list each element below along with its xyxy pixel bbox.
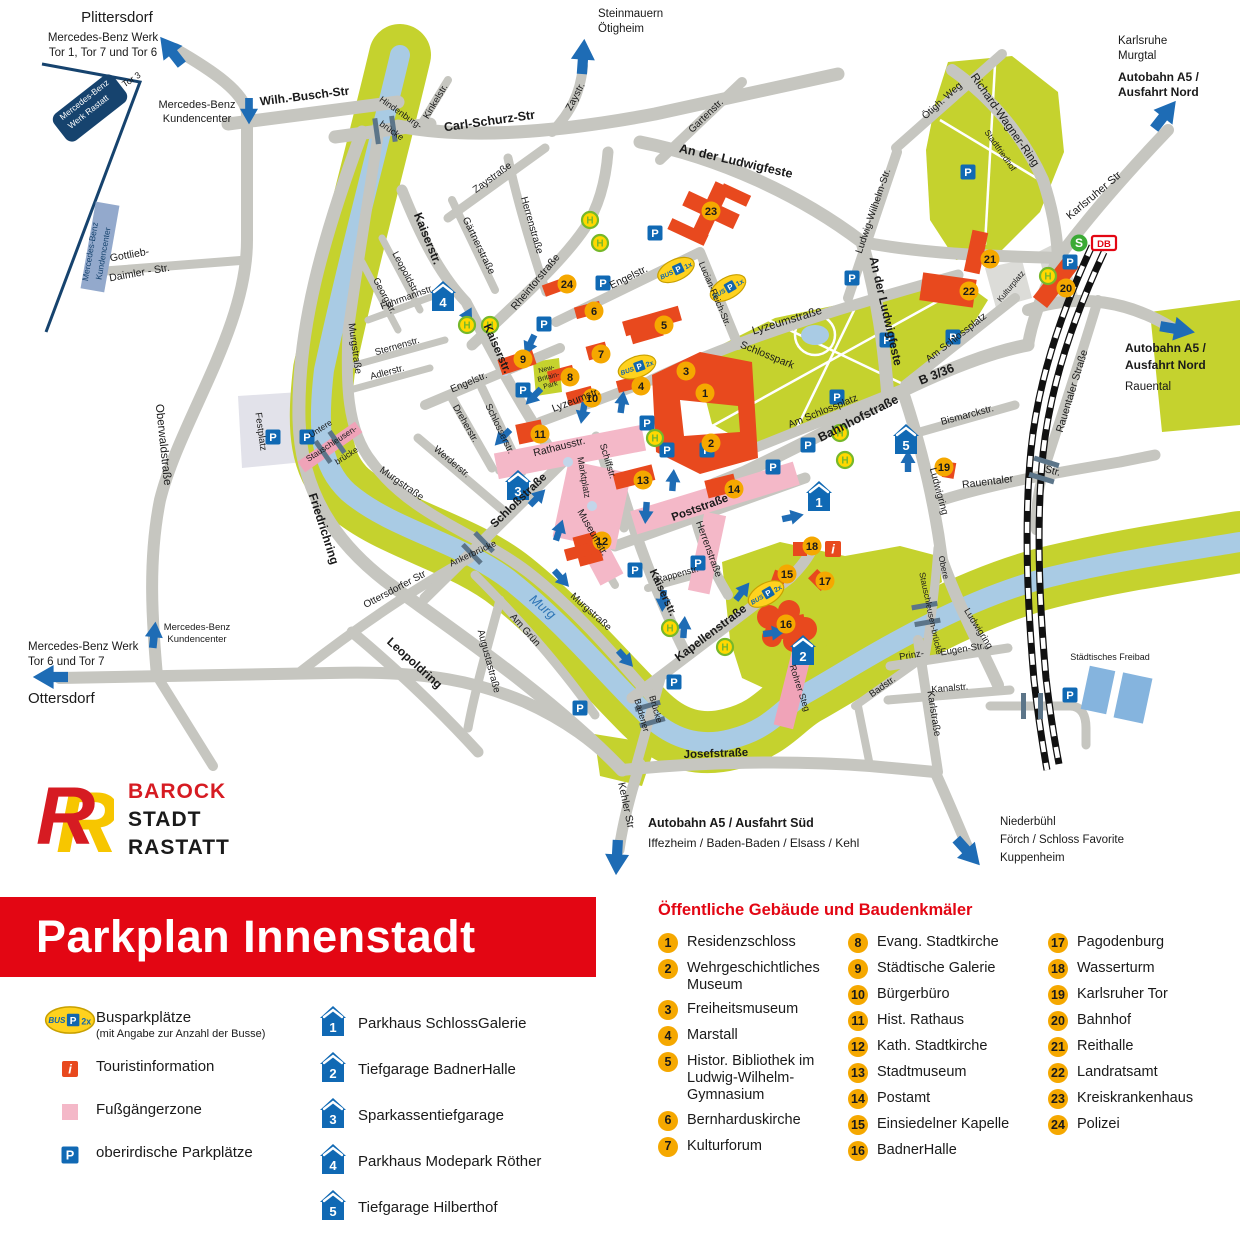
direction-arrow-icon	[781, 507, 806, 526]
building-marker-13: 13	[634, 471, 653, 490]
bus-stop-icon: H	[647, 430, 663, 446]
street-label: Schlosserstr.	[482, 402, 516, 456]
road	[858, 706, 870, 766]
direction-arrow-icon	[604, 839, 630, 875]
parking-icon: P	[961, 165, 976, 180]
public-building	[719, 183, 751, 207]
building-list-item-16: 16BadnerHalle	[848, 1142, 1040, 1161]
parking-icon: P	[801, 438, 816, 453]
building-marker-20: 20	[1057, 279, 1076, 298]
street-label: Rauental	[1125, 381, 1171, 393]
legend-item-pink-square: Fußgängerzone	[44, 1098, 316, 1126]
building-list-item-22: 22Landratsamt	[1048, 1064, 1238, 1083]
logo-line1: BAROCK	[128, 778, 230, 806]
street-label: Kuppenheim	[1000, 852, 1065, 864]
building-list-item-6: 6Bernharduskirche	[658, 1112, 840, 1131]
bus-stop-icon: H	[717, 639, 733, 655]
svg-text:H: H	[586, 216, 593, 227]
parking-icon: P	[1063, 255, 1078, 270]
street-label: Autobahn A5 / Ausfahrt Süd	[648, 816, 814, 830]
sbahn-icon: S	[1071, 235, 1088, 252]
svg-text:H: H	[463, 321, 470, 332]
street-label: Karlsruhe	[1118, 35, 1167, 47]
parkhaus-icon: 1	[318, 1004, 348, 1038]
building-marker-22: 22	[960, 282, 979, 301]
logo-line2: STADT	[128, 806, 230, 834]
building-number-badge: 23	[1048, 1089, 1068, 1109]
building-number-badge: 4	[658, 1026, 678, 1046]
legend-item-info: iTouristinformation	[44, 1055, 316, 1083]
buildings-list-col3: 17Pagodenburg18Wasserturm19Karlsruher To…	[1048, 934, 1238, 1142]
building-list-item-21: 21Reithalle	[1048, 1038, 1238, 1057]
building-list-item-3: 3Freiheitsmuseum	[658, 1001, 840, 1020]
building-name: Einsiedelner Kapelle	[877, 1116, 1009, 1133]
building-name: Freiheitsmuseum	[687, 1001, 798, 1018]
svg-text:1: 1	[329, 1020, 336, 1035]
svg-text:H: H	[596, 239, 603, 250]
symbol-legend: BUSP2xBusparkplätze(mit Angabe zur Anzah…	[44, 1006, 316, 1184]
svg-text:P: P	[1066, 257, 1074, 269]
buildings-list-col1: 1Residenzschloss2Wehrgeschichtliches Mus…	[658, 934, 840, 1164]
svg-text:4: 4	[638, 381, 645, 393]
building-number-badge: 3	[658, 1000, 678, 1020]
svg-text:H: H	[1044, 272, 1051, 283]
bus-stop-icon: H	[582, 212, 598, 228]
legend-label: Fußgängerzone	[96, 1098, 202, 1118]
svg-text:S: S	[1075, 236, 1083, 250]
svg-text:1: 1	[815, 495, 822, 510]
building-number-badge: 11	[848, 1011, 868, 1031]
fountain-dot	[587, 501, 597, 511]
building-name: Evang. Stadtkirche	[877, 934, 999, 951]
parking-icon: P	[766, 460, 781, 475]
legend-label: Busparkplätze	[96, 1006, 265, 1026]
svg-text:14: 14	[728, 484, 741, 496]
building-marker-2: 2	[702, 434, 721, 453]
svg-text:H: H	[666, 624, 673, 635]
building-marker-24: 24	[558, 275, 577, 294]
tourist-info-icon: i	[62, 1061, 78, 1077]
page-title: Parkplan Innenstadt	[0, 911, 476, 963]
parkhaus-legend: 1Parkhaus SchlossGalerie2Tiefgarage Badn…	[318, 1004, 568, 1234]
park-pond	[801, 325, 829, 345]
svg-text:5: 5	[329, 1204, 336, 1219]
building-number-badge: 17	[1048, 933, 1068, 953]
svg-text:2: 2	[329, 1066, 336, 1081]
svg-text:i: i	[831, 542, 835, 557]
info-icon: i	[44, 1055, 96, 1083]
svg-text:2: 2	[799, 649, 806, 664]
svg-text:DB: DB	[1097, 239, 1111, 250]
legend-item-p-square: Poberirdische Parkplätze	[44, 1141, 316, 1169]
parkhaus-label: Sparkassentiefgarage	[358, 1107, 504, 1124]
street-label: Autobahn A5 /	[1125, 341, 1207, 355]
building-number-badge: 21	[1048, 1037, 1068, 1057]
building-number-badge: 9	[848, 959, 868, 979]
parkhaus-icon: 5	[318, 1188, 348, 1222]
bus-parking-icon: BUSP2x	[46, 1007, 95, 1033]
street-label: Mercedes-Benz Werk	[48, 32, 159, 44]
building-name: Bahnhof	[1077, 1012, 1131, 1029]
building-name: BadnerHalle	[877, 1142, 957, 1159]
svg-text:P: P	[519, 385, 527, 397]
parkhaus-icon: 3	[318, 1096, 348, 1130]
street-label: Josefstraße	[683, 747, 748, 761]
building-number-badge: 20	[1048, 1011, 1068, 1031]
direction-arrow-icon	[144, 621, 165, 649]
barock-stadt-rastatt-logo: R R BAROCK STADT RASTATT	[30, 770, 230, 870]
svg-text:6: 6	[591, 306, 597, 318]
svg-text:7: 7	[598, 349, 604, 361]
svg-text:P: P	[269, 432, 277, 444]
building-list-item-15: 15Einsiedelner Kapelle	[848, 1116, 1040, 1135]
svg-text:2x: 2x	[81, 1016, 91, 1026]
building-marker-7: 7	[592, 345, 611, 364]
building-number-badge: 22	[1048, 1063, 1068, 1083]
building-name: Wehrgeschichtliches Museum	[687, 960, 840, 994]
svg-text:24: 24	[561, 279, 574, 291]
parkhaus-legend-item-1: 1Parkhaus SchlossGalerie	[318, 1004, 568, 1043]
direction-arrow-icon	[570, 38, 596, 75]
street-label: Mercedes-Benz	[158, 99, 235, 111]
building-marker-23: 23	[702, 202, 721, 221]
freibad-building	[1081, 666, 1116, 714]
svg-text:13: 13	[637, 475, 649, 487]
svg-text:23: 23	[705, 206, 717, 218]
building-name: Landratsamt	[1077, 1064, 1158, 1081]
building-list-item-4: 4Marstall	[658, 1027, 840, 1046]
svg-text:9: 9	[520, 354, 526, 366]
building-name: Bernharduskirche	[687, 1112, 801, 1129]
building-list-item-24: 24Polizei	[1048, 1116, 1238, 1135]
db-icon: DB	[1092, 236, 1116, 250]
street-label: Tor 1, Tor 7 und Tor 6	[49, 47, 157, 59]
parking-icon: P	[628, 563, 643, 578]
street-label: Ausfahrt Nord	[1125, 358, 1206, 372]
svg-text:5: 5	[661, 320, 667, 332]
building-name: Reithalle	[1077, 1038, 1133, 1055]
parking-icon: P	[62, 1147, 79, 1164]
parkhaus-legend-item-3: 3Sparkassentiefgarage	[318, 1096, 568, 1135]
building-name: Residenzschloss	[687, 934, 796, 951]
direction-arrow-icon	[33, 665, 68, 689]
building-marker-5: 5	[655, 316, 674, 335]
street-label: Förch / Schloss Favorite	[1000, 834, 1124, 846]
svg-text:P: P	[804, 440, 812, 452]
svg-text:16: 16	[780, 619, 792, 631]
building-name: Hist. Rathaus	[877, 1012, 964, 1029]
svg-text:21: 21	[984, 254, 996, 266]
building-name: Bürgerbüro	[877, 986, 950, 1003]
building-number-badge: 8	[848, 933, 868, 953]
pink-square-icon	[44, 1098, 96, 1126]
road	[352, 632, 478, 752]
building-name: Histor. Bibliothek im Ludwig-Wilhelm-Gym…	[687, 1053, 840, 1104]
building-marker-18: 18	[803, 537, 822, 556]
street-label: Plittersdorf	[81, 9, 154, 26]
building-number-badge: 10	[848, 985, 868, 1005]
svg-text:P: P	[643, 418, 651, 430]
legend-label: Touristinformation	[96, 1055, 214, 1075]
street-label: Kundencenter	[167, 634, 226, 645]
building-list-item-18: 18Wasserturm	[1048, 960, 1238, 979]
parkhaus-legend-item-2: 2Tiefgarage BadnerHalle	[318, 1050, 568, 1089]
legend-item-bus-oval: BUSP2xBusparkplätze(mit Angabe zur Anzah…	[44, 1006, 316, 1040]
street-label: Ottersdorf	[28, 690, 96, 707]
street-label: Ausfahrt Nord	[1118, 85, 1199, 99]
svg-text:BUS: BUS	[48, 1016, 66, 1025]
street-label: Steinmauern	[598, 8, 663, 20]
building-marker-16: 16	[777, 615, 796, 634]
building-list-item-20: 20Bahnhof	[1048, 1012, 1238, 1031]
svg-text:17: 17	[819, 576, 831, 588]
street-label: Murgtal	[1118, 50, 1156, 62]
bus-stop-icon: H	[1040, 268, 1056, 284]
parkhaus-icon: 2	[318, 1050, 348, 1084]
svg-text:8: 8	[567, 372, 573, 384]
parking-icon: P	[845, 271, 860, 286]
street-label: Iffezheim / Baden-Baden / Elsass / Kehl	[648, 836, 859, 850]
road	[622, 763, 935, 772]
building-name: Kulturforum	[687, 1138, 762, 1155]
building-name: Wasserturm	[1077, 960, 1155, 977]
fountain-dot	[563, 457, 573, 467]
street-label: Werderstr.	[431, 444, 472, 480]
parkhaus-label: Tiefgarage Hilberthof	[358, 1199, 498, 1216]
building-number-badge: 7	[658, 1137, 678, 1157]
parking-icon: P	[667, 675, 682, 690]
building-name: Stadtmuseum	[877, 1064, 966, 1081]
building-marker-4: 4	[632, 377, 651, 396]
street-label: Ötigheim	[598, 23, 644, 35]
parking-icon: P	[648, 226, 663, 241]
street-label: Tor 6 und Tor 7	[28, 656, 105, 668]
street-label: Niederbühl	[1000, 816, 1056, 828]
building-name: Polizei	[1077, 1116, 1120, 1133]
svg-text:P: P	[651, 228, 659, 240]
building-list-item-11: 11Hist. Rathaus	[848, 1012, 1040, 1031]
building-list-item-10: 10Bürgerbüro	[848, 986, 1040, 1005]
street-label: Dreherstr.	[450, 403, 480, 445]
road	[935, 772, 968, 848]
parkhaus-marker-5: 5	[320, 1190, 346, 1220]
svg-text:3: 3	[329, 1112, 336, 1127]
p-square-icon: P	[44, 1141, 96, 1169]
building-number-badge: 13	[848, 1063, 868, 1083]
building-number-badge: 15	[848, 1115, 868, 1135]
building-list-item-13: 13Stadtmuseum	[848, 1064, 1040, 1083]
building-list-item-23: 23Kreiskrankenhaus	[1048, 1090, 1238, 1109]
building-number-badge: 18	[1048, 959, 1068, 979]
street-label: Oberwaldstraße	[153, 403, 173, 486]
building-number-badge: 24	[1048, 1115, 1068, 1135]
building-marker-11: 11	[531, 425, 550, 444]
building-marker-8: 8	[561, 368, 580, 387]
parkhaus-marker-4: 4	[320, 1144, 346, 1174]
svg-text:11: 11	[534, 429, 546, 441]
logo-r-icon: R R	[30, 770, 114, 870]
svg-text:P: P	[663, 445, 671, 457]
building-list-item-17: 17Pagodenburg	[1048, 934, 1238, 953]
buildings-list-col2: 8Evang. Stadtkirche9Städtische Galerie10…	[848, 934, 1040, 1168]
building-marker-3: 3	[677, 362, 696, 381]
building-marker-6: 6	[585, 302, 604, 321]
building-list-item-19: 19Karlsruher Tor	[1048, 986, 1238, 1005]
bus-stop-icon: H	[459, 317, 475, 333]
legend-sublabel: (mit Angabe zur Anzahl der Busse)	[96, 1028, 265, 1040]
bus-stop-icon: H	[662, 620, 678, 636]
svg-text:P: P	[964, 167, 972, 179]
building-name: Pagodenburg	[1077, 934, 1164, 951]
svg-text:P: P	[70, 1016, 77, 1027]
building-list-item-5: 5Histor. Bibliothek im Ludwig-Wilhelm-Gy…	[658, 1053, 840, 1104]
parking-icon: P	[573, 701, 588, 716]
parkhaus-legend-item-5: 5Tiefgarage Hilberthof	[318, 1188, 568, 1227]
svg-text:P: P	[66, 1148, 75, 1163]
building-list-item-14: 14Postamt	[848, 1090, 1040, 1109]
svg-text:22: 22	[963, 286, 975, 298]
svg-text:15: 15	[781, 569, 793, 581]
svg-text:P: P	[848, 273, 856, 285]
svg-text:18: 18	[806, 541, 818, 553]
building-name: Kath. Stadtkirche	[877, 1038, 987, 1055]
direction-arrow-icon	[665, 469, 681, 492]
parkhaus-icon: 4	[318, 1142, 348, 1176]
svg-text:20: 20	[1060, 283, 1072, 295]
building-number-badge: 19	[1048, 985, 1068, 1005]
freibad-building	[1114, 672, 1153, 723]
building-number-badge: 5	[658, 1052, 678, 1072]
parkhaus-marker-1: 1	[320, 1006, 346, 1036]
street-label: Städtisches Freibad	[1070, 652, 1150, 662]
legend-label: oberirdische Parkplätze	[96, 1141, 253, 1161]
parking-icon: P	[537, 317, 552, 332]
svg-text:P: P	[769, 462, 777, 474]
building-number-badge: 12	[848, 1037, 868, 1057]
building-list-item-12: 12Kath. Stadtkirche	[848, 1038, 1040, 1057]
building-marker-9: 9	[514, 350, 533, 369]
buildings-list-heading: Öffentliche Gebäude und Baudenkmäler	[658, 901, 972, 920]
street-label: Gärtnerstraße	[460, 216, 497, 277]
road	[152, 49, 247, 676]
svg-text:P: P	[576, 703, 584, 715]
parkhaus-legend-item-4: 4Parkhaus Modepark Röther	[318, 1142, 568, 1181]
city-map: PPPPPPPPPPPPPPPPPPPPPPHHHHHHHHHHBUSP1xBU…	[0, 0, 1240, 890]
bus-stop-icon: H	[592, 235, 608, 251]
parkhaus-label: Parkhaus SchlossGalerie	[358, 1015, 526, 1032]
svg-text:P: P	[540, 319, 548, 331]
parkhaus-marker-3: 3	[320, 1098, 346, 1128]
parkhaus-label: Tiefgarage BadnerHalle	[358, 1061, 516, 1078]
building-list-item-8: 8Evang. Stadtkirche	[848, 934, 1040, 953]
title-banner: Parkplan Innenstadt	[0, 897, 596, 977]
building-number-badge: 16	[848, 1141, 868, 1161]
parkplan-poster: PPPPPPPPPPPPPPPPPPPPPPHHHHHHHHHHBUSP1xBU…	[0, 0, 1240, 1240]
building-name: Kreiskrankenhaus	[1077, 1090, 1193, 1107]
parking-icon: P	[640, 416, 655, 431]
svg-text:4: 4	[329, 1158, 337, 1173]
building-list-item-1: 1Residenzschloss	[658, 934, 840, 953]
bus-stop-icon: H	[837, 452, 853, 468]
street-label: Zaystr.	[564, 81, 588, 113]
building-number-badge: 14	[848, 1089, 868, 1109]
building-name: Postamt	[877, 1090, 930, 1107]
svg-text:P: P	[631, 565, 639, 577]
svg-text:2: 2	[708, 438, 714, 450]
building-marker-14: 14	[725, 480, 744, 499]
svg-text:5: 5	[902, 438, 909, 453]
parkhaus-marker-1: 1	[806, 481, 832, 511]
svg-text:P: P	[1066, 690, 1074, 702]
building-marker-17: 17	[816, 572, 835, 591]
parkhaus-label: Parkhaus Modepark Röther	[358, 1153, 541, 1170]
building-name: Marstall	[687, 1027, 738, 1044]
svg-text:4: 4	[439, 295, 447, 310]
bus-oval-icon: BUSP2x	[44, 1006, 96, 1034]
street-label: Bismarckstr.	[940, 403, 995, 428]
building-list-item-7: 7Kulturforum	[658, 1138, 840, 1157]
svg-text:H: H	[651, 434, 658, 445]
building-marker-21: 21	[981, 250, 1000, 269]
street-label: Gottlieb-	[109, 246, 151, 265]
parking-icon: P	[516, 383, 531, 398]
svg-text:3: 3	[683, 366, 689, 378]
building-name: Städtische Galerie	[877, 960, 995, 977]
svg-text:i: i	[68, 1062, 72, 1077]
logo-glyph-red: R	[36, 771, 95, 862]
parkhaus-marker-2: 2	[320, 1052, 346, 1082]
building-number-badge: 1	[658, 933, 678, 953]
street-label: Mercedes-Benz Werk	[28, 641, 139, 653]
street-label: Mercedes-Benz	[164, 622, 231, 633]
svg-text:1: 1	[702, 388, 708, 400]
svg-text:H: H	[841, 456, 848, 467]
svg-text:P: P	[670, 677, 678, 689]
parking-icon: P	[660, 443, 675, 458]
road	[157, 676, 213, 766]
svg-text:H: H	[721, 643, 728, 654]
building-number-badge: 6	[658, 1111, 678, 1131]
building-marker-15: 15	[778, 565, 797, 584]
svg-text:P: P	[599, 278, 607, 290]
building-name: Karlsruher Tor	[1077, 986, 1168, 1003]
parking-icon: P	[1063, 688, 1078, 703]
building-number-badge: 2	[658, 959, 678, 979]
street-label: Kaiserstr.	[411, 211, 444, 267]
street-label: Kinkelstr.	[421, 82, 450, 121]
tourist-info-icon: i	[825, 541, 841, 557]
building-marker-1: 1	[696, 384, 715, 403]
street-label: Autobahn A5 /	[1118, 70, 1200, 84]
logo-line3: RASTATT	[128, 834, 230, 862]
building-list-item-9: 9Städtische Galerie	[848, 960, 1040, 979]
street-label: Kundencenter	[163, 113, 232, 125]
building-list-item-2: 2Wehrgeschichtliches Museum	[658, 960, 840, 994]
